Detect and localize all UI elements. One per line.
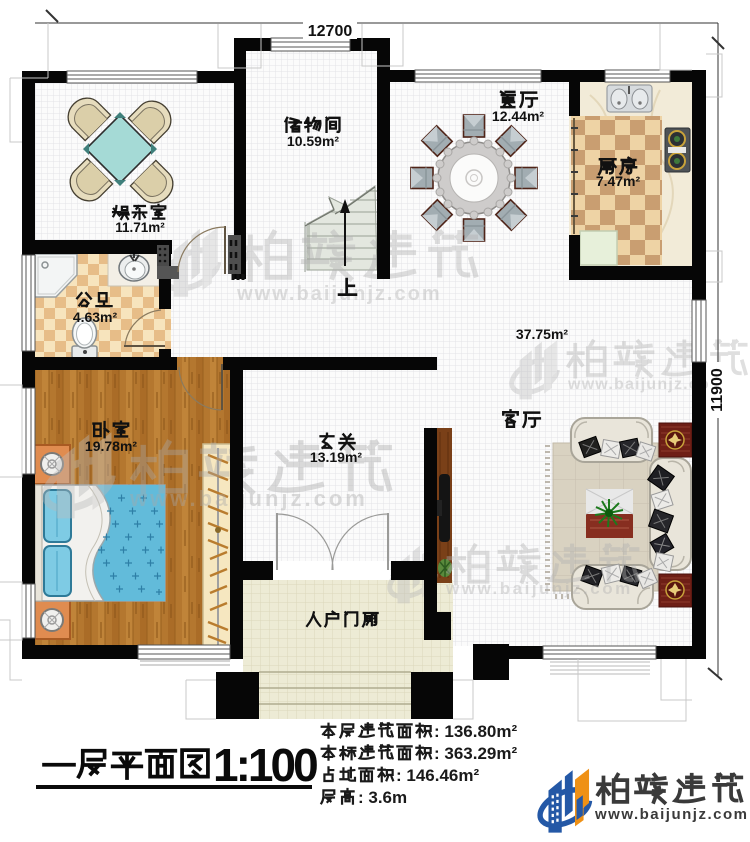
- svg-text:7.47m²: 7.47m²: [596, 173, 641, 189]
- svg-text:www.baijunjz.com: www.baijunjz.com: [129, 486, 368, 511]
- svg-text:www.baijunjz.com: www.baijunjz.com: [445, 579, 633, 598]
- svg-text:: 146.46m²: : 146.46m²: [396, 766, 479, 785]
- svg-text:37.75m²: 37.75m²: [516, 326, 568, 342]
- svg-text:www.baijunjz.com: www.baijunjz.com: [594, 806, 748, 823]
- svg-text:: 3.6m: : 3.6m: [358, 788, 407, 807]
- svg-text:: 363.29m²: : 363.29m²: [434, 744, 517, 763]
- svg-text:12700: 12700: [308, 23, 353, 40]
- svg-text:10.59m²: 10.59m²: [287, 133, 339, 149]
- svg-text:11.71m²: 11.71m²: [115, 220, 165, 235]
- svg-text:11900: 11900: [709, 368, 726, 412]
- svg-text:1:100: 1:100: [213, 739, 317, 791]
- svg-text:13.19m²: 13.19m²: [310, 449, 362, 465]
- svg-text:4.63m²: 4.63m²: [73, 309, 118, 325]
- svg-text:: 136.80m²: : 136.80m²: [434, 722, 517, 741]
- svg-text:19.78m²: 19.78m²: [85, 438, 137, 454]
- svg-text:12.44m²: 12.44m²: [492, 108, 544, 124]
